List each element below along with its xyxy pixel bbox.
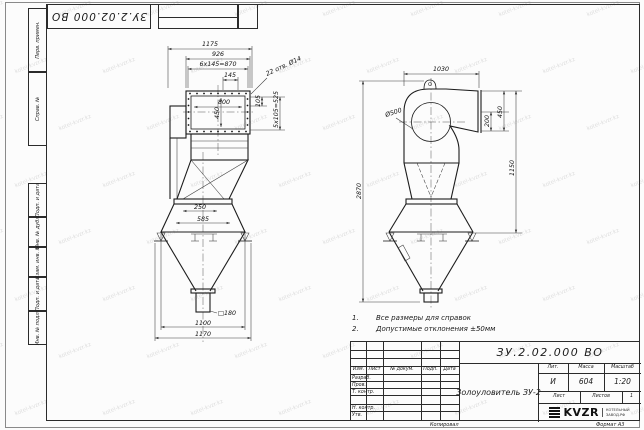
margin-box-sprav-no: Справ. № [28, 72, 47, 146]
note-line-1: 1. Все размеры для справок [352, 313, 572, 324]
margin-box-label: Подп. и дата [35, 277, 41, 311]
note-number: 1. [352, 313, 376, 324]
note-line-2: 2. Допустимые отклонения ±50мм [352, 324, 572, 335]
margin-box-label: Перв. примен. [35, 21, 41, 59]
tb-hline [538, 391, 641, 392]
tb-mass-header: Масса [568, 365, 604, 370]
tb-mass-value: 604 [568, 377, 604, 386]
tb-row-ncontrol: Н. контр. [352, 405, 375, 412]
margin-box-podp-data-2: Подп. и дата [28, 277, 47, 311]
tb-hline [538, 373, 641, 374]
logo-subtitle-line2: ЗАВОД.РФ [606, 413, 630, 417]
tb-hline [351, 358, 459, 359]
margin-box-perv-primen: Перв. примен. [28, 8, 47, 72]
company-logo: KVZR КОТЕЛЬНЫЙ ЗАВОД.РФ [538, 403, 641, 422]
top-aux-box-2 [238, 4, 258, 29]
margin-box-inv-podl: Инв. № подл. [28, 311, 47, 345]
copied-label: Копировал [430, 422, 459, 428]
tb-lit-header: Лит. [538, 365, 568, 370]
tb-col-izm: Изм. [351, 367, 366, 372]
margin-box-label: Справ. № [35, 97, 41, 121]
note-text: Допустимые отклонения ±50мм [376, 324, 495, 335]
logo-text: KVZR [563, 406, 598, 419]
logo-subtitle: КОТЕЛЬНЫЙ ЗАВОД.РФ [602, 408, 630, 417]
top-aux-box-1 [158, 4, 238, 29]
margin-box-inv-dubl: Инв. № дубл. [28, 217, 47, 247]
margin-box-podp-data-1: Подп. и дата [28, 183, 47, 217]
note-number: 2. [352, 324, 376, 335]
margin-box-vzam-inv: Взам. инв. № [28, 247, 47, 277]
tb-lit-value: И [538, 377, 568, 386]
tb-col-data: Дата [440, 367, 459, 372]
top-aux-box-divider [159, 17, 237, 18]
note-text: Все размеры для справок [376, 313, 471, 324]
tb-row-developed: Разраб. [352, 375, 371, 382]
format-label: Формат A3 [596, 422, 624, 428]
tb-scale-value: 1:20 [604, 377, 641, 386]
top-stamp-doc-number: ЗУ.2.02.000 ВО [48, 5, 150, 28]
tb-doc-number: ЗУ.2.02.000 ВО [459, 342, 641, 363]
tb-row-checked: Пров. [352, 382, 366, 389]
tb-col-docum: № докум. [383, 367, 421, 372]
margin-box-label: Инв. № подл. [35, 311, 41, 346]
margin-box-label: Инв. № дубл. [35, 215, 41, 249]
tb-col-podp: Подп. [421, 367, 440, 372]
notes-block: 1. Все размеры для справок 2. Допустимые… [352, 313, 572, 335]
margin-box-label: Подп. и дата [35, 183, 41, 217]
title-block: Изм. Лист № докум. Подп. Дата Разраб. Пр… [350, 341, 640, 421]
tb-hline [351, 350, 459, 351]
tb-sheets-label: Листов [580, 394, 622, 399]
tb-col-list: Лист [366, 367, 383, 372]
tb-scale-header: Масштаб [604, 365, 641, 370]
drawing-sheet: kotel-kvzr.kzkotel-kvzr.kzkotel-kvzr.kzk… [0, 0, 644, 430]
margin-box-label: Взам. инв. № [35, 245, 41, 279]
logo-mark-icon [549, 407, 560, 418]
tb-row-tcontrol: Т. контр. [352, 389, 374, 396]
tb-product-title: Золоуловитель ЗУ-2 [459, 363, 538, 422]
tb-row-approved: Утв. [352, 412, 362, 419]
top-stamp-box: ЗУ.2.02.000 ВО [47, 4, 151, 29]
tb-sheet-label: Лист [538, 394, 580, 399]
tb-sheets-value: 1 [622, 394, 641, 399]
logo-subtitle-line1: КОТЕЛЬНЫЙ [606, 408, 630, 412]
